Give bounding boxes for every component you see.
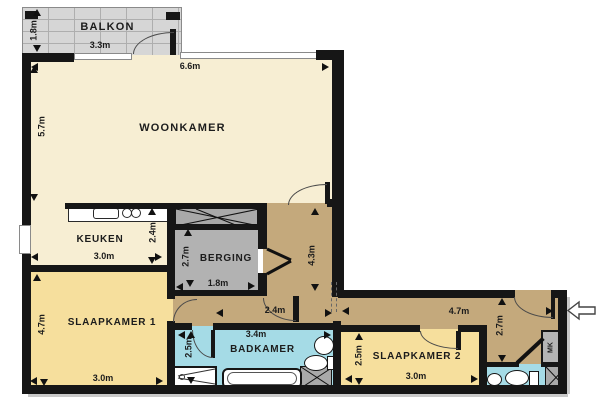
- balkon-width-dim: 3.3m: [85, 40, 115, 51]
- wall: [167, 225, 267, 230]
- meterkast-label: MK: [546, 333, 557, 363]
- dim-arrow: [355, 333, 363, 340]
- wall: [167, 272, 175, 299]
- dim-arrow: [30, 66, 38, 73]
- wc-toilet-bowl: [505, 370, 529, 386]
- woonkamer-width-dim: 6.6m: [175, 61, 205, 72]
- berging-door-leaves: [267, 248, 293, 276]
- balkon-divider: [166, 12, 180, 20]
- dim-arrow: [31, 253, 38, 261]
- slaapkamer2-width-dim: 3.0m: [401, 371, 431, 382]
- dim-arrow: [176, 283, 183, 291]
- corridor-depth-dim: 4.3m: [307, 241, 318, 271]
- dim-arrow: [30, 377, 37, 385]
- woonkamer-depth-dim: 5.7m: [37, 112, 48, 142]
- dim-arrow: [30, 194, 38, 201]
- wall: [541, 362, 567, 367]
- dim-arrow: [40, 379, 48, 386]
- dim-arrow: [33, 45, 41, 52]
- wall: [479, 325, 487, 388]
- dim-arrow: [178, 331, 185, 339]
- dim-arrow: [186, 280, 194, 287]
- dim-arrow: [324, 331, 331, 339]
- dim-arrow: [498, 298, 506, 305]
- entrance-arrow-icon: [566, 301, 596, 320]
- dim-arrow: [248, 282, 255, 290]
- kitchen-sink: [93, 208, 119, 219]
- wc-toilet-tank: [529, 371, 539, 386]
- wall: [332, 50, 344, 297]
- wall: [483, 362, 519, 367]
- berging-width-dim: 1.8m: [203, 278, 233, 289]
- floor-plan: MK: [0, 0, 600, 400]
- balkon-window: [74, 53, 132, 60]
- wall: [338, 325, 420, 332]
- dashed-line: [331, 282, 332, 312]
- woonkamer-window: [180, 52, 318, 59]
- dim-arrow: [322, 63, 329, 71]
- wall: [338, 290, 515, 298]
- badkamer-label: BADKAMER: [215, 344, 310, 355]
- dashed-line: [336, 282, 337, 312]
- dim-arrow: [148, 208, 156, 215]
- dim-arrow: [311, 208, 319, 215]
- kitchen-hob2: [131, 208, 141, 218]
- keuken-width-dim: 3.0m: [89, 251, 119, 262]
- dim-arrow: [148, 257, 156, 264]
- wall: [213, 323, 335, 330]
- dim-arrow: [311, 284, 319, 291]
- dim-arrow: [156, 377, 163, 385]
- slaapkamer2-label: SLAAPKAMER 2: [362, 351, 472, 362]
- berging-shaft-hatch: [175, 208, 258, 225]
- berging-depth-dim: 2.7m: [181, 242, 192, 272]
- dim-arrow: [33, 274, 41, 281]
- dim-arrow: [216, 309, 223, 317]
- wall: [167, 321, 175, 388]
- dim-arrow: [325, 309, 332, 317]
- keuken-window: [19, 225, 31, 254]
- slaapkamer1-depth-dim: 4.7m: [37, 310, 48, 340]
- dim-arrow: [471, 375, 478, 383]
- dim-arrow: [342, 307, 349, 315]
- slaapkamer1-label: SLAAPKAMER 1: [52, 317, 172, 328]
- balkon-depth-dim: 1.8m: [29, 16, 40, 46]
- dim-arrow: [184, 229, 192, 236]
- balkon-label: BALKON: [60, 21, 155, 33]
- dim-arrow: [187, 377, 195, 384]
- wall: [65, 203, 267, 209]
- dim-arrow: [498, 355, 506, 362]
- dim-arrow: [33, 9, 41, 16]
- dim-arrow: [546, 307, 553, 315]
- entry-depth-dim: 2.7m: [495, 311, 506, 341]
- wall: [22, 265, 175, 272]
- wall: [22, 254, 31, 393]
- wall: [458, 325, 479, 332]
- dim-arrow: [155, 253, 162, 261]
- wall: [175, 323, 192, 330]
- berging-label: BERGING: [191, 253, 261, 264]
- slaapkamer2-depth-dim: 2.5m: [354, 341, 365, 371]
- dim-arrow: [355, 378, 363, 385]
- keuken-depth-dim: 2.4m: [148, 218, 159, 248]
- entry-width-dim: 4.7m: [444, 306, 474, 317]
- dim-arrow: [345, 375, 352, 383]
- badkamer-width-dim: 3.4m: [241, 329, 271, 340]
- dim-arrow: [187, 331, 195, 338]
- woonkamer-label: WOONKAMER: [125, 122, 240, 134]
- badkamer-toilet-bowl: [304, 355, 328, 371]
- shadow: [28, 394, 568, 397]
- slaapkamer1-width-dim: 3.0m: [88, 373, 118, 384]
- hall-inner-width-dim: 2.4m: [260, 305, 290, 316]
- keuken-label: KEUKEN: [65, 234, 135, 245]
